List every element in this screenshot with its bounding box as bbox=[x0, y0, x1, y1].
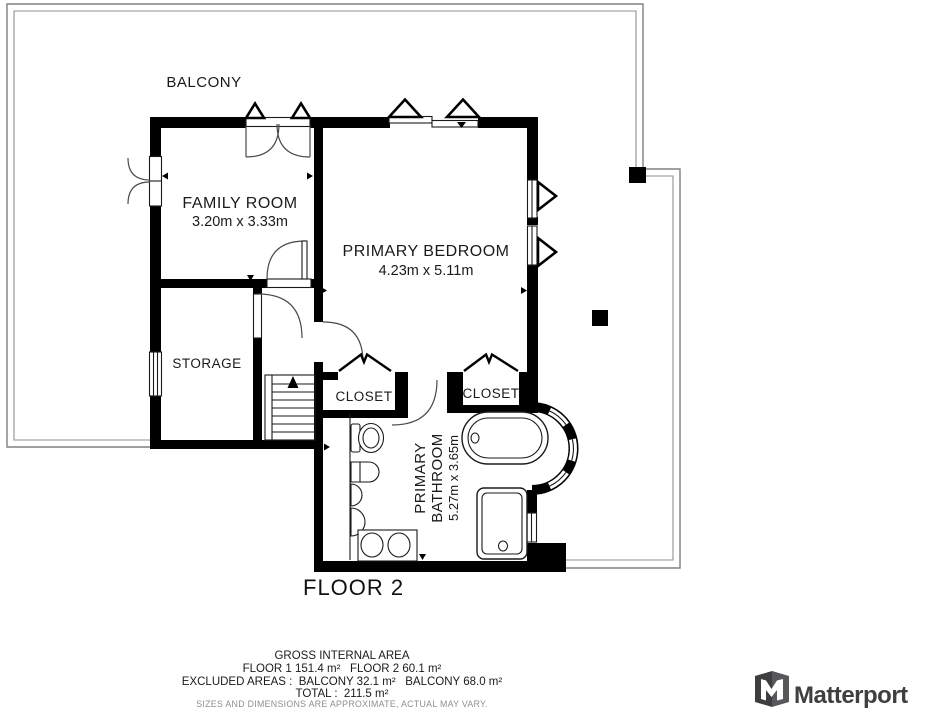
bathtub-icon bbox=[462, 412, 548, 464]
shower-icon bbox=[477, 488, 527, 559]
room-label-storage: STORAGE bbox=[172, 356, 241, 371]
excluded-areas-line: EXCLUDED AREAS : BALCONY 32.1 m² BALCONY… bbox=[182, 676, 503, 688]
floor-title: FLOOR 2 bbox=[303, 575, 404, 600]
wall-markers bbox=[162, 122, 527, 560]
room-label-primary-bathroom-2: BATHROOM bbox=[429, 433, 446, 523]
storage-window bbox=[150, 352, 162, 396]
awning-window-icon bbox=[389, 100, 421, 118]
area-summary: GROSS INTERNAL AREA FLOOR 1 151.4 m² FLO… bbox=[182, 650, 503, 709]
balcony-post bbox=[629, 167, 646, 183]
toilet-icon bbox=[351, 424, 384, 453]
room-dims-primary-bathroom: 5.27m x 3.65m bbox=[446, 435, 461, 521]
room-label-balcony: BALCONY bbox=[166, 74, 241, 91]
floors-area-line: FLOOR 1 151.4 m² FLOOR 2 60.1 m² bbox=[243, 663, 442, 675]
bidet-icon bbox=[351, 462, 379, 482]
stairs bbox=[265, 375, 315, 440]
bedroom-door bbox=[323, 322, 363, 362]
balcony-double-door bbox=[246, 104, 310, 158]
room-dims-family-room: 3.20m x 3.33m bbox=[192, 214, 288, 230]
french-door bbox=[128, 157, 162, 207]
bathroom-window bbox=[527, 513, 537, 542]
stairs-up-arrow-icon bbox=[288, 376, 299, 388]
floorplan-page: BALCONY FAMILY ROOM 3.20m x 3.33m PRIMAR… bbox=[0, 0, 936, 712]
matterport-logo: Matterport bbox=[755, 671, 908, 709]
bifold-door-icon bbox=[339, 355, 391, 372]
floorplan-canvas: BALCONY FAMILY ROOM 3.20m x 3.33m PRIMAR… bbox=[0, 0, 936, 712]
matterport-logo-icon bbox=[755, 671, 789, 707]
casement-window-icon bbox=[538, 238, 556, 266]
fixture-icon bbox=[351, 484, 362, 506]
balcony-column bbox=[592, 310, 608, 326]
casement-window-icon bbox=[538, 182, 556, 210]
disclaimer-text: SIZES AND DIMENSIONS ARE APPROXIMATE, AC… bbox=[196, 699, 488, 709]
windows bbox=[150, 117, 538, 543]
matterport-logo-text: Matterport bbox=[794, 682, 908, 709]
family-room-door bbox=[267, 241, 311, 288]
balcony-outline-upper-left bbox=[7, 4, 643, 447]
bifold-door-icon bbox=[464, 355, 518, 372]
room-dims-primary-bedroom: 4.23m x 5.11m bbox=[379, 263, 474, 279]
room-label-primary-bathroom-1: PRIMARY bbox=[412, 442, 429, 514]
room-label-closet-left: CLOSET bbox=[335, 389, 392, 404]
room-label-closet-right: CLOSET bbox=[462, 386, 519, 401]
awning-window-icon bbox=[447, 100, 479, 118]
double-vanity-icon bbox=[358, 530, 417, 561]
room-label-family-room: FAMILY ROOM bbox=[182, 195, 297, 212]
room-label-primary-bedroom: PRIMARY BEDROOM bbox=[343, 243, 510, 260]
storage-door bbox=[254, 294, 303, 338]
doors bbox=[128, 100, 556, 426]
balcony-outline-right bbox=[566, 169, 680, 568]
gross-internal-area-title: GROSS INTERNAL AREA bbox=[274, 650, 409, 662]
